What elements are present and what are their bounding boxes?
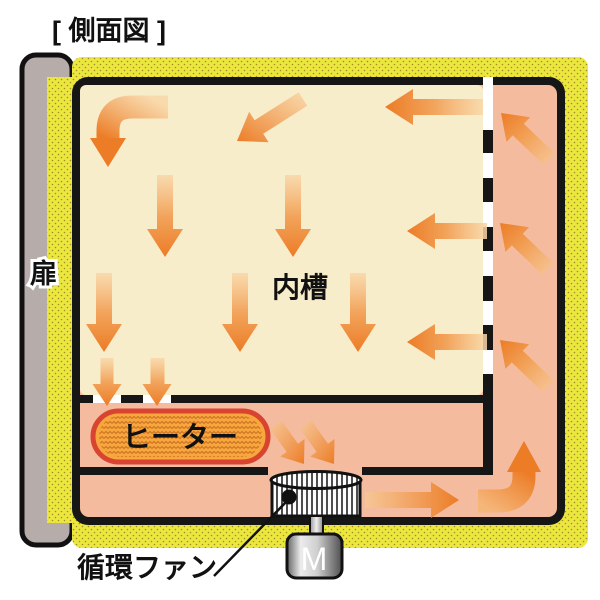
heater-label: ヒーター [122, 421, 238, 454]
perforated-bottom-wall [80, 395, 493, 403]
oven-side-view-diagram: M [ 側面図 ] 扉 内槽 ヒーター 循環ファン [0, 0, 600, 600]
circulation-fan [271, 472, 361, 517]
fan-callout-dot [282, 490, 297, 505]
circulation-fan-label: 循環ファン [77, 552, 217, 583]
perforated-right-wall [483, 77, 493, 403]
motor-label: M [301, 541, 328, 577]
inner-chamber-label: 内槽 [272, 272, 328, 303]
door-label: 扉 [30, 259, 57, 289]
diagram-title: [ 側面図 ] [52, 16, 166, 46]
motor: M [287, 534, 342, 578]
diagram-page: M [ 側面図 ] 扉 内槽 ヒーター 循環ファン [0, 0, 600, 600]
